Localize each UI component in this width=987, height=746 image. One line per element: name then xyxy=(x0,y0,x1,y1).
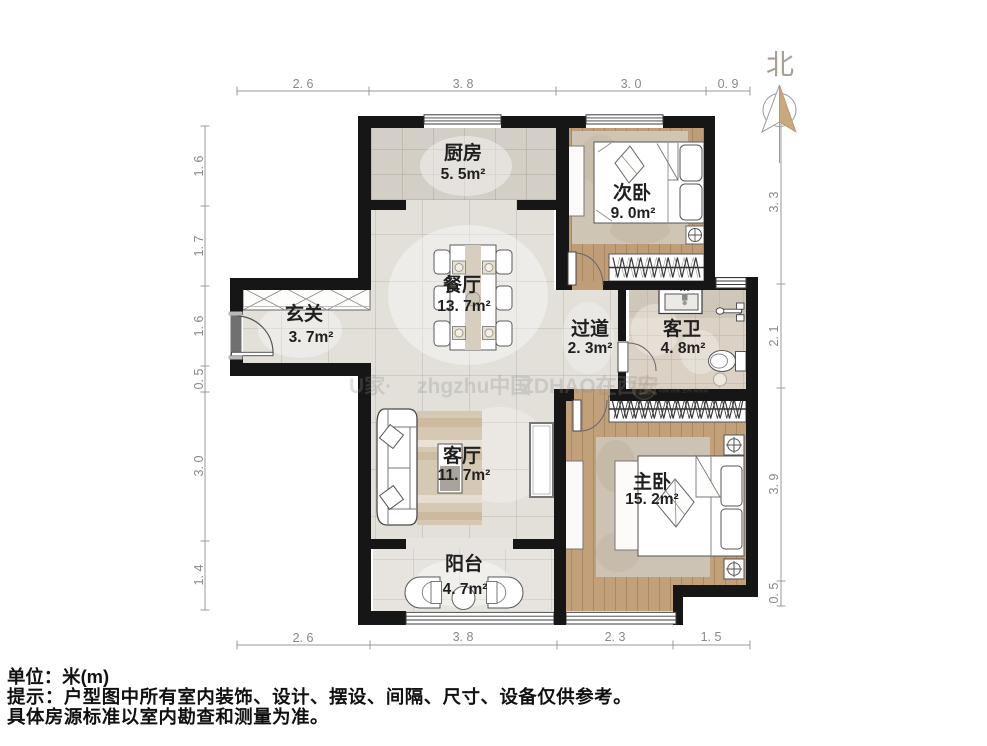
svg-text:0. 9: 0. 9 xyxy=(718,77,739,91)
svg-text:客卫: 客卫 xyxy=(663,317,701,340)
svg-text:次卧: 次卧 xyxy=(613,181,651,204)
svg-text:1. 7: 1. 7 xyxy=(192,236,206,257)
svg-text:3. 7m²: 3. 7m² xyxy=(289,329,334,346)
svg-text:3. 9: 3. 9 xyxy=(767,474,781,495)
svg-text:客厅: 客厅 xyxy=(443,444,481,467)
svg-text:9. 0m²: 9. 0m² xyxy=(611,205,656,222)
svg-text:北: 北 xyxy=(766,49,794,80)
svg-text:提示：户型图中所有室内装饰、设计、摆设、间隔、尺寸、设备仅供: 提示：户型图中所有室内装饰、设计、摆设、间隔、尺寸、设备仅供参考。 xyxy=(7,686,632,707)
svg-text:|: | xyxy=(511,375,516,396)
svg-text:U家·: U家· xyxy=(349,374,392,398)
svg-text:同城 找房 全网 真房源: 同城 找房 全网 真房源 xyxy=(659,387,708,394)
svg-text:1. 6: 1. 6 xyxy=(192,316,206,337)
svg-text:0. 5: 0. 5 xyxy=(767,583,781,604)
svg-text:主卧: 主卧 xyxy=(633,471,671,493)
svg-text:3. 0: 3. 0 xyxy=(192,456,206,477)
svg-text:3. 8: 3. 8 xyxy=(453,630,474,644)
svg-text:玄关: 玄关 xyxy=(285,302,323,325)
svg-text:3. 8: 3. 8 xyxy=(453,77,474,91)
svg-text:2. 6: 2. 6 xyxy=(293,77,314,91)
svg-text:13. 7m²: 13. 7m² xyxy=(437,298,490,315)
svg-text:单位：米(m): 单位：米(m) xyxy=(7,666,109,687)
svg-text:3. 0: 3. 0 xyxy=(621,77,642,91)
svg-text:11. 7m²: 11. 7m² xyxy=(438,467,491,484)
svg-text:1. 6: 1. 6 xyxy=(192,156,206,177)
svg-text:15. 2m²: 15. 2m² xyxy=(625,491,678,508)
svg-text:2. 1: 2. 1 xyxy=(767,326,781,347)
svg-text:2. 3: 2. 3 xyxy=(605,630,626,644)
svg-text:1. 5: 1. 5 xyxy=(701,630,722,644)
svg-text:1. 4: 1. 4 xyxy=(192,565,206,586)
svg-text:4. 7m²: 4. 7m² xyxy=(443,581,488,598)
svg-text:3. 3: 3. 3 xyxy=(767,192,781,213)
svg-text:具体房源标准以室内勘查和测量为准。: 具体房源标准以室内勘查和测量为准。 xyxy=(7,706,329,727)
svg-text:0. 5: 0. 5 xyxy=(192,369,206,390)
svg-text:餐厅: 餐厅 xyxy=(443,273,481,296)
svg-text:厨房: 厨房 xyxy=(444,141,482,164)
svg-text:4. 8m²: 4. 8m² xyxy=(661,340,706,357)
svg-text:2. 6: 2. 6 xyxy=(293,631,314,645)
svg-text:住: 住 xyxy=(637,381,650,396)
svg-text:阳台: 阳台 xyxy=(445,552,483,575)
svg-text:2. 3m²: 2. 3m² xyxy=(568,340,613,357)
svg-text:5. 5m²: 5. 5m² xyxy=(441,166,486,183)
svg-text:过道: 过道 xyxy=(571,317,609,340)
